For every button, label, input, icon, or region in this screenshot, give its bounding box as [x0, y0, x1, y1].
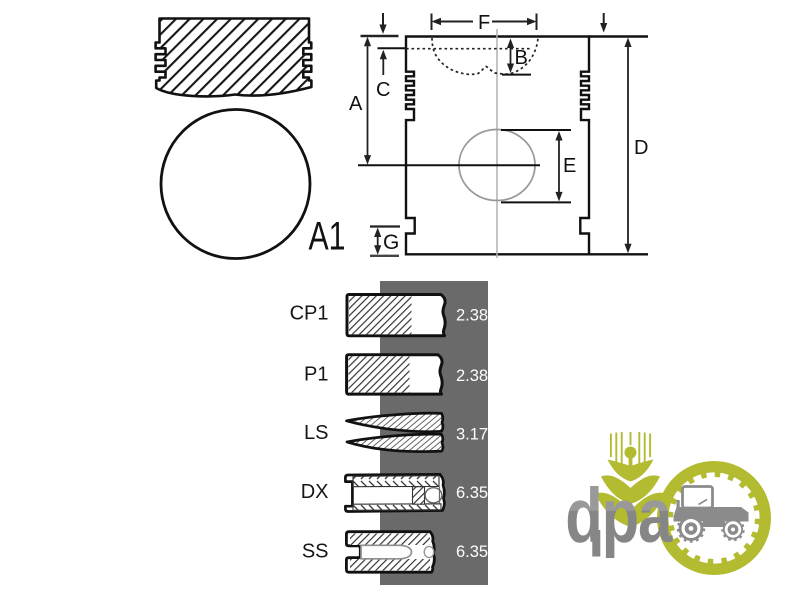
svg-text:A: A: [349, 93, 363, 115]
svg-text:C: C: [376, 79, 390, 101]
svg-text:3.17: 3.17: [456, 426, 488, 444]
svg-text:dpa: dpa: [565, 472, 673, 558]
svg-text:A1: A1: [309, 215, 346, 259]
svg-text:B: B: [515, 47, 528, 69]
svg-text:SS: SS: [302, 541, 329, 563]
svg-text:6.35: 6.35: [456, 543, 488, 561]
svg-text:F: F: [478, 12, 490, 34]
svg-text:D: D: [634, 137, 648, 159]
svg-text:LS: LS: [304, 422, 328, 444]
svg-text:2.38: 2.38: [456, 306, 488, 324]
svg-text:CP1: CP1: [290, 303, 329, 325]
svg-text:G: G: [383, 231, 399, 254]
svg-text:2.38: 2.38: [456, 367, 488, 385]
svg-text:6.35: 6.35: [456, 484, 488, 502]
svg-text:E: E: [563, 155, 576, 177]
svg-text:P1: P1: [304, 364, 328, 386]
svg-text:DX: DX: [301, 481, 329, 503]
